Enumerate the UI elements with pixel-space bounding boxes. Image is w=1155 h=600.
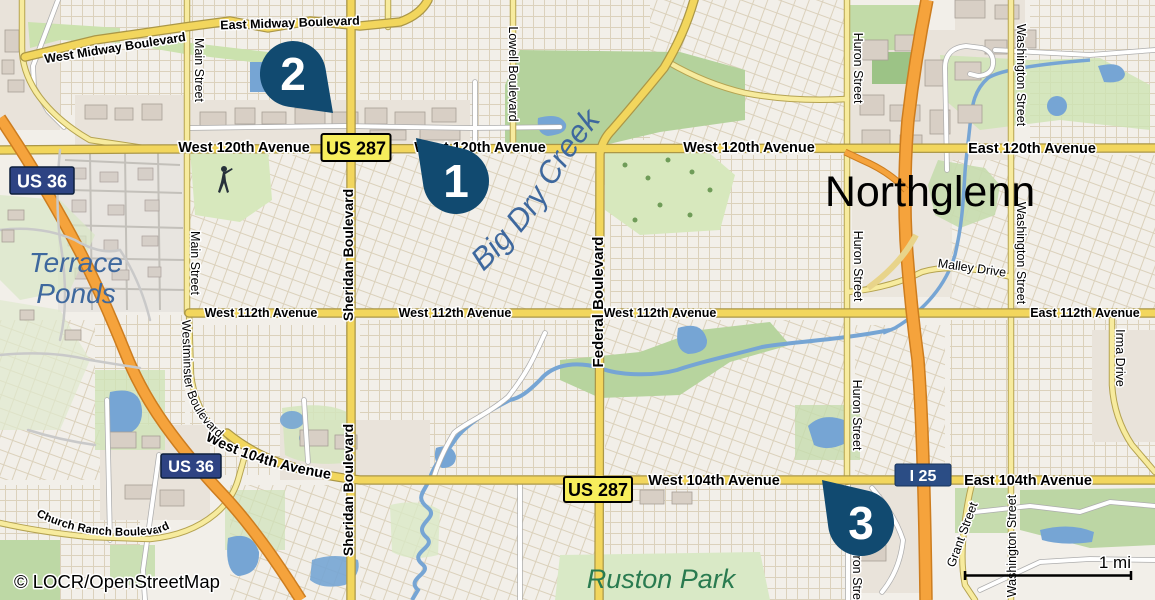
svg-text:1 mi: 1 mi	[1099, 553, 1131, 572]
svg-text:West 120th Avenue: West 120th Avenue	[683, 140, 815, 156]
svg-text:East 104th Avenue: East 104th Avenue	[964, 473, 1092, 489]
svg-text:Lowell Boulevard: Lowell Boulevard	[506, 26, 520, 121]
svg-text:Sheridan Boulevard: Sheridan Boulevard	[340, 424, 356, 556]
svg-text:2: 2	[280, 48, 306, 100]
svg-text:Sheridan Boulevard: Sheridan Boulevard	[340, 189, 356, 321]
svg-text:US 36: US 36	[168, 458, 214, 476]
svg-text:1: 1	[443, 155, 469, 207]
svg-text:East 120th Avenue: East 120th Avenue	[968, 141, 1096, 157]
svg-text:Huron Street: Huron Street	[850, 380, 864, 451]
svg-text:Irma Drive: Irma Drive	[1113, 329, 1127, 387]
svg-text:© LOCR/OpenStreetMap: © LOCR/OpenStreetMap	[14, 571, 220, 592]
svg-text:Main Street: Main Street	[188, 231, 202, 295]
svg-text:Washington Street: Washington Street	[1014, 24, 1028, 127]
svg-text:Ponds: Ponds	[36, 278, 115, 309]
svg-text:I 25: I 25	[910, 468, 937, 485]
svg-text:West 120th Avenue: West 120th Avenue	[178, 140, 310, 156]
svg-text:Ruston Park: Ruston Park	[587, 564, 737, 594]
svg-text:US 287: US 287	[326, 139, 386, 159]
svg-text:3: 3	[848, 497, 874, 549]
svg-text:Terrace: Terrace	[29, 247, 123, 278]
svg-text:West 104th Avenue: West 104th Avenue	[648, 473, 780, 489]
svg-text:Huron Street: Huron Street	[851, 33, 865, 104]
svg-text:East 112th Avenue: East 112th Avenue	[1030, 306, 1140, 320]
svg-text:Washington Street: Washington Street	[1005, 494, 1019, 597]
svg-text:US 287: US 287	[568, 480, 628, 500]
svg-text:Washington Street: Washington Street	[1014, 202, 1028, 305]
svg-text:West 112th Avenue: West 112th Avenue	[205, 306, 318, 320]
svg-text:US 36: US 36	[17, 172, 67, 192]
svg-text:West 112th Avenue: West 112th Avenue	[399, 306, 512, 320]
svg-text:Huron Street: Huron Street	[851, 231, 865, 302]
svg-text:Main Street: Main Street	[192, 38, 206, 102]
svg-text:Federal Boulevard: Federal Boulevard	[590, 237, 607, 368]
svg-text:Northglenn: Northglenn	[825, 168, 1035, 216]
svg-text:West 112th Avenue: West 112th Avenue	[604, 306, 717, 320]
